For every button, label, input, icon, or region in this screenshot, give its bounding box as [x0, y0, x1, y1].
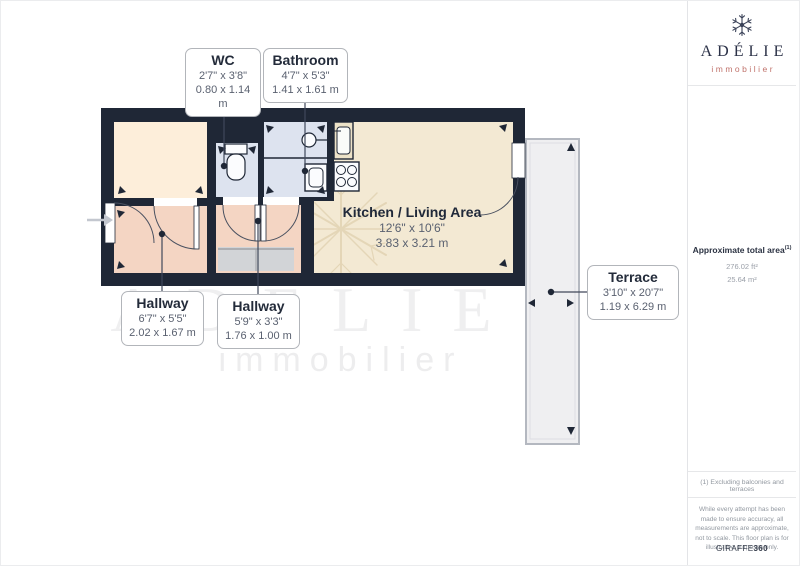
room-imperial: 3'10" x 20'7" — [592, 286, 674, 300]
label-kitchen-living: Kitchen / Living Area 12'6" x 10'6" 3.83… — [331, 203, 493, 251]
room-name: Terrace — [592, 269, 674, 286]
room-imperial: 6'7" x 5'5" — [126, 312, 199, 326]
doorway-room-topleft — [154, 198, 197, 206]
room-imperial: 4'7" x 5'3" — [268, 69, 343, 83]
label-terrace: Terrace 3'10" x 20'7" 1.19 x 6.29 m — [587, 265, 679, 320]
room-name: WC — [190, 52, 256, 69]
area-footnote: (1) Excluding balconies and terraces — [690, 479, 794, 493]
room-metric: 1.41 x 1.61 m — [268, 83, 343, 97]
panel-divider — [688, 85, 796, 86]
room-imperial: 5'9" x 3'3" — [222, 315, 295, 329]
brand-name: ADÉLIE — [688, 43, 796, 61]
room-metric: 1.76 x 1.00 m — [222, 329, 295, 343]
room-imperial: 12'6" x 10'6" — [331, 221, 493, 236]
label-hallway-middle: Hallway 5'9" x 3'3" 1.76 x 1.00 m — [217, 294, 300, 349]
total-area-footnote-marker: (1) — [785, 245, 792, 251]
floor-plan — [1, 1, 800, 566]
room-name: Hallway — [126, 295, 199, 312]
panel-divider — [688, 471, 796, 472]
terrace-door-leaf — [512, 143, 525, 178]
room-topleft-floor — [114, 122, 207, 198]
room-metric: 1.19 x 6.29 m — [592, 300, 674, 314]
brand-tagline: immobilier — [688, 64, 796, 74]
kitchen-sink-counter — [334, 122, 353, 159]
provider-logo: GIRAFFE360 — [688, 544, 796, 553]
room-metric: 2.02 x 1.67 m — [126, 326, 199, 340]
total-area-ft: 276.02 ft² — [688, 262, 796, 271]
hallway-left-floor — [114, 206, 207, 273]
label-wc: WC 2'7" x 3'8" 0.80 x 1.14 m — [185, 48, 261, 117]
room-metric: 3.83 x 3.21 m — [331, 236, 493, 251]
toilet — [225, 144, 247, 180]
floorplan-page: ADÉLIE immobilier — [0, 0, 800, 566]
panel-divider — [688, 497, 796, 498]
label-bathroom: Bathroom 4'7" x 5'3" 1.41 x 1.61 m — [263, 48, 348, 103]
snowflake-logo-icon — [730, 13, 754, 37]
doorway-bathroom — [263, 197, 299, 205]
label-hallway-left: Hallway 6'7" x 5'5" 2.02 x 1.67 m — [121, 291, 204, 346]
bathroom-sink — [305, 164, 327, 191]
room-name: Bathroom — [268, 52, 343, 69]
room-metric: 0.80 x 1.14 m — [190, 83, 256, 111]
total-area-label: Approximate total area(1) — [688, 245, 796, 255]
doorway-wc — [223, 197, 258, 205]
room-imperial: 2'7" x 3'8" — [190, 69, 256, 83]
stove — [334, 162, 359, 191]
room-name: Kitchen / Living Area — [331, 203, 493, 221]
door-leaf-bathroom — [261, 205, 266, 241]
info-panel: ADÉLIE immobilier Approximate total area… — [687, 1, 796, 566]
total-area-m: 25.64 m² — [688, 275, 796, 284]
door-leaf-topleft — [194, 206, 199, 249]
room-name: Hallway — [222, 298, 295, 315]
